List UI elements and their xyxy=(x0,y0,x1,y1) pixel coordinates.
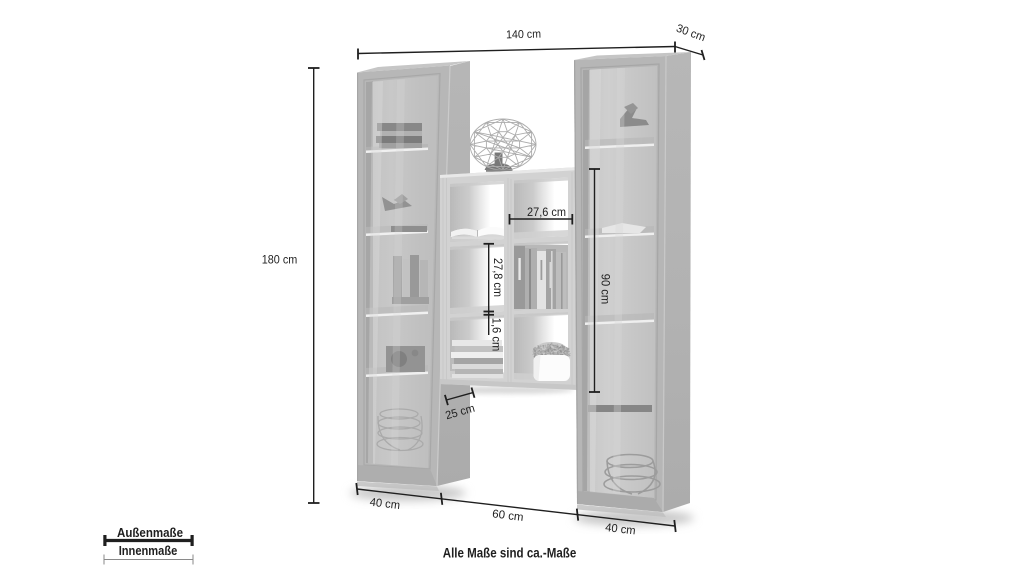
svg-text:140 cm: 140 cm xyxy=(506,29,541,42)
svg-text:90 cm: 90 cm xyxy=(598,274,610,305)
svg-text:Außenmaße: Außenmaße xyxy=(117,525,183,540)
svg-text:40 cm: 40 cm xyxy=(605,522,637,538)
svg-text:1,6 cm: 1,6 cm xyxy=(490,318,502,352)
svg-text:40 cm: 40 cm xyxy=(369,497,401,513)
svg-text:60 cm: 60 cm xyxy=(492,508,525,524)
svg-text:27,6 cm: 27,6 cm xyxy=(527,207,566,219)
svg-text:Innenmaße: Innenmaße xyxy=(119,543,178,558)
svg-text:180 cm: 180 cm xyxy=(262,255,298,267)
svg-text:27,8 cm: 27,8 cm xyxy=(491,258,503,297)
svg-text:30 cm: 30 cm xyxy=(675,23,707,45)
svg-text:Alle Maße sind ca.-Maße: Alle Maße sind ca.-Maße xyxy=(443,544,577,560)
